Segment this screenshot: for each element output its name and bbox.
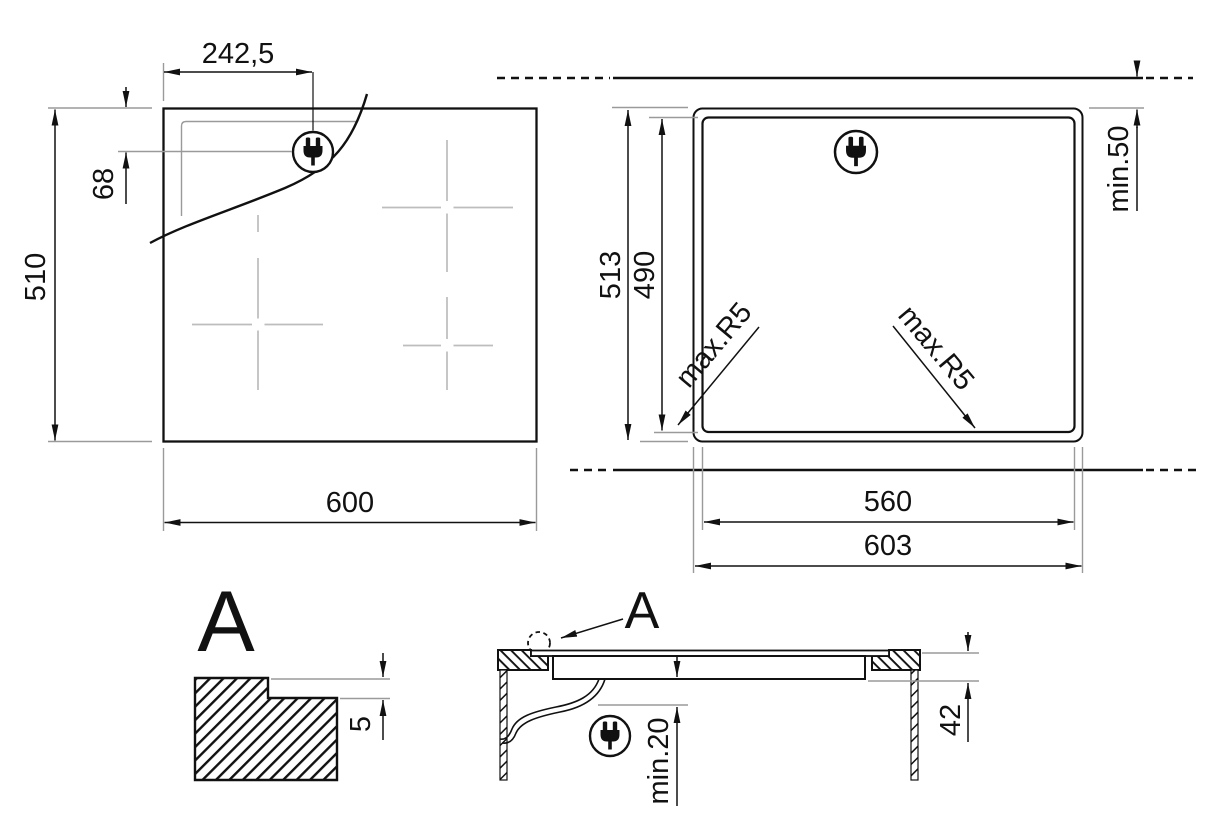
dim-label-plug-x: 242,5 xyxy=(202,38,275,70)
section-detail-label: A xyxy=(625,582,660,640)
dim-label-hob-total-height: 42 xyxy=(935,704,967,736)
hob-outline xyxy=(164,109,537,442)
cutout-view: 513 490 min.50 max.R5 max.R5 560 xyxy=(497,62,1200,573)
dimension-plug-x: 242,5 xyxy=(164,38,312,72)
dim-label-inner-height: 490 xyxy=(629,251,661,299)
dimension-step-depth: 5 xyxy=(345,653,383,740)
dim-label-bottom-clearance: min.20 xyxy=(643,717,675,804)
dimension-cutout-outer-width: 603 xyxy=(695,530,1082,566)
power-plug-icon xyxy=(835,131,877,173)
hob-body xyxy=(553,656,865,679)
power-plug-icon xyxy=(590,716,630,756)
dim-label-inner-width: 560 xyxy=(864,486,912,518)
dimension-cutout-inner-width: 560 xyxy=(704,486,1074,522)
dim-label-step-depth: 5 xyxy=(345,716,377,732)
dimension-cutout-inner-height: 490 xyxy=(629,119,662,431)
dimension-rear-clearance: min.50 xyxy=(1103,62,1137,213)
section-view: A min.20 42 xyxy=(498,582,979,806)
dim-label-outer-height: 513 xyxy=(595,251,627,299)
worktop-rebate-block xyxy=(195,678,337,780)
dim-label-hob-width: 600 xyxy=(326,487,374,519)
detail-a-view: A 5 xyxy=(195,574,390,780)
installation-drawing: 242,5 68 510 600 xyxy=(0,0,1208,840)
drawing-canvas: 242,5 68 510 600 xyxy=(0,0,1208,840)
dim-label-outer-width: 603 xyxy=(864,530,912,562)
cutout-outer-rect xyxy=(694,109,1083,442)
dimension-hob-total-height: 42 xyxy=(935,632,968,742)
dimension-plug-y: 68 xyxy=(88,87,126,204)
detail-callout-arrow xyxy=(561,619,623,638)
cabinet-left-wall xyxy=(500,670,507,780)
dimension-hob-width: 600 xyxy=(165,487,536,523)
dimension-cutout-outer-height: 513 xyxy=(595,110,628,440)
cabinet-right-wall xyxy=(911,670,918,780)
hob-top-view: 242,5 68 510 600 xyxy=(20,38,537,531)
power-plug-icon xyxy=(293,132,333,172)
dimension-hob-height: 510 xyxy=(20,110,55,441)
detail-label: A xyxy=(197,574,255,670)
dim-label-plug-y: 68 xyxy=(88,168,120,200)
dim-label-rear-clearance: min.50 xyxy=(1103,125,1135,212)
dim-label-hob-height: 510 xyxy=(20,253,52,301)
